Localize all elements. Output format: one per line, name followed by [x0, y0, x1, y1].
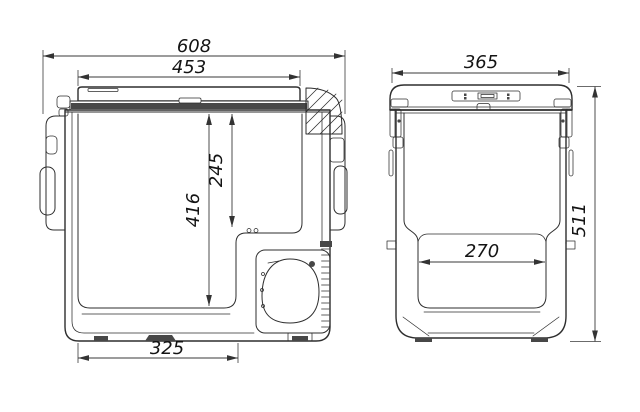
dim-label-245: 245: [206, 153, 227, 187]
lid-notch: [88, 89, 118, 92]
handle-left-bar: [46, 116, 65, 230]
dimension-inner-depth-upper: 245: [206, 114, 232, 227]
front-foot-right: [292, 336, 308, 341]
lid-latch-bump: [179, 98, 201, 103]
step-tab-right: [566, 241, 575, 249]
side-foot-left: [415, 338, 432, 342]
hinge-screw: [397, 119, 400, 122]
dimension-lid-width: 453: [78, 57, 300, 86]
cooler-dimension-drawing: 608 453 416 245 325: [0, 0, 640, 412]
vent-top-bracket: [320, 241, 332, 247]
dim-label-270: 270: [465, 241, 499, 262]
control-tick: [464, 94, 467, 97]
hinge-foot: [393, 137, 403, 148]
wall-bump-right: [569, 150, 573, 176]
vent-slats: [322, 249, 330, 327]
front-lid: [70, 87, 308, 110]
compressor-compartment: [256, 241, 332, 333]
compressor-fitting-dot: [309, 261, 315, 267]
compressor-nub: [262, 273, 265, 276]
handle-right-bar: [330, 116, 345, 230]
side-lid: [390, 85, 572, 110]
side-hinge-right: [554, 99, 572, 148]
dim-label-511: 511: [569, 203, 590, 237]
front-base-details: [94, 333, 312, 341]
front-foot-left: [94, 336, 108, 341]
base-chamfer-right: [533, 317, 559, 336]
hinge-block-hatch: [306, 88, 342, 134]
drain-hole: [247, 229, 251, 233]
technical-drawing-page: 608 453 416 245 325: [0, 0, 640, 412]
hinge-screw: [561, 119, 564, 122]
side-body: [387, 99, 575, 342]
base-chamfer-left: [403, 317, 429, 336]
dimension-inner-depth-full: 416: [183, 114, 209, 306]
dim-label-365: 365: [464, 52, 498, 73]
lid-bracket-left: [57, 96, 70, 108]
side-dimensions: 365 270 511: [392, 52, 601, 342]
control-recess: [452, 91, 520, 101]
control-panel-inner: [481, 95, 494, 98]
dimension-inner-width: 270: [419, 241, 545, 262]
hinge-cap: [391, 99, 408, 107]
drain-hole: [254, 229, 258, 233]
side-view: 365 270 511: [387, 52, 601, 342]
front-inner-wall-left: [72, 112, 254, 333]
dimension-overall-depth: 365: [392, 52, 569, 83]
compressor-body: [262, 259, 319, 323]
control-tick: [464, 97, 467, 100]
step-tab-left: [387, 241, 396, 249]
lid-gasket-band: [71, 103, 307, 109]
front-view: 608 453 416 245 325: [40, 36, 347, 363]
hinge-cap: [554, 99, 571, 107]
wall-bump-left: [389, 150, 393, 176]
handle-left-grip: [40, 167, 55, 215]
dim-label-325: 325: [150, 338, 184, 359]
control-tick: [507, 97, 510, 100]
control-tick: [507, 94, 510, 97]
dimension-overall-height: 511: [569, 87, 601, 342]
dim-label-416: 416: [183, 193, 204, 227]
dimension-base-width: 325: [78, 338, 238, 363]
side-hinge-left: [390, 99, 408, 148]
hinge-bracket: [330, 138, 344, 162]
handle-left-bump: [46, 136, 57, 154]
side-foot-right: [531, 338, 548, 342]
side-cavity-outline: [404, 113, 560, 308]
front-handle-left: [40, 116, 65, 230]
dim-label-608: 608: [177, 36, 211, 57]
dim-label-453: 453: [172, 57, 206, 78]
